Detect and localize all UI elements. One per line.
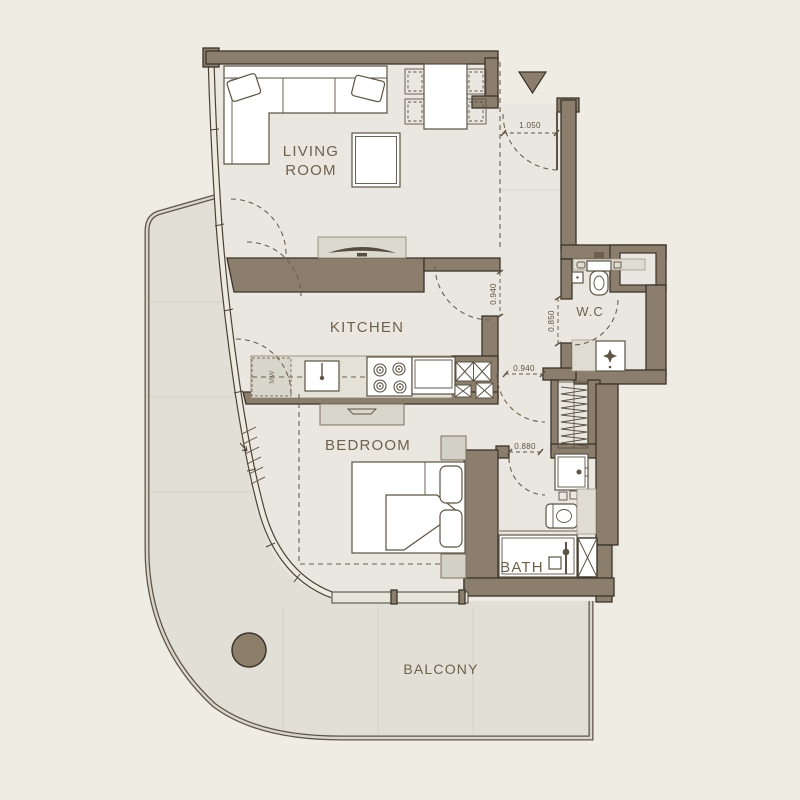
wall-entry-right: [561, 100, 576, 250]
living-room-label-line1: LIVING: [283, 143, 339, 160]
window-wall-post: [391, 590, 397, 604]
wall-bedroom-bath: [464, 450, 498, 592]
nightstand-top: [441, 436, 466, 460]
wc-toilet-bowl: [590, 271, 608, 295]
entry-dim-label: 1.050: [519, 121, 541, 130]
coffee-table: [352, 133, 400, 187]
balcony-column: [232, 633, 266, 667]
wc-bidet-dot: [576, 276, 578, 278]
kitchen-label: KITCHEN: [330, 319, 404, 336]
bath-sink: [555, 454, 588, 490]
wc-toilet-tank: [587, 261, 611, 271]
bath-toilet: [546, 504, 577, 528]
wall-kitchen-band: [227, 258, 424, 292]
bed-pillow-top: [440, 466, 462, 503]
bath-sink-faucet: [577, 470, 582, 475]
bedroom-label: BEDROOM: [325, 437, 411, 454]
nightstand-bottom: [441, 554, 466, 578]
floorplan-canvas: BALCONY: [0, 0, 800, 800]
balcony-label: BALCONY: [403, 661, 478, 677]
dresser: [320, 404, 404, 425]
wall-wardrobe-left: [551, 380, 558, 452]
wc-vent: [594, 252, 604, 258]
duct-shaft: [578, 538, 597, 577]
wall-top: [206, 51, 498, 64]
wc-drain-dot: [609, 366, 612, 369]
kitchen-faucet-dot: [320, 376, 324, 380]
bedroom-door-dim-label: 0.940: [513, 364, 535, 373]
kitchen-door-dim-label: 0.940: [489, 283, 498, 305]
living-room-label-line2: ROOM: [285, 162, 336, 179]
bath-ledge: [577, 489, 596, 534]
wall-wc-right: [646, 285, 666, 376]
dining-table: [424, 64, 467, 129]
floorplan-svg: BALCONY: [0, 0, 800, 800]
window-wall-post-2: [459, 590, 465, 604]
bathtub-handle: [549, 557, 561, 569]
stove: [367, 357, 412, 396]
bathtub-showerhead: [563, 549, 570, 556]
bed-pillow-bottom: [440, 510, 462, 547]
window-wall-bottom: [332, 592, 468, 603]
bath-door-dim-label: 0.880: [514, 442, 536, 451]
wc-label: W.C: [576, 304, 604, 319]
wall-bath-right: [596, 384, 618, 545]
wc-door-dim-label: 0.850: [547, 310, 556, 332]
wall-wc-left-upper: [561, 259, 572, 299]
bath-label: BATH: [500, 559, 544, 576]
wall-bath-bottom: [464, 578, 614, 596]
tv-stand: [357, 253, 367, 257]
wall-bedroom-door-right: [543, 368, 576, 380]
